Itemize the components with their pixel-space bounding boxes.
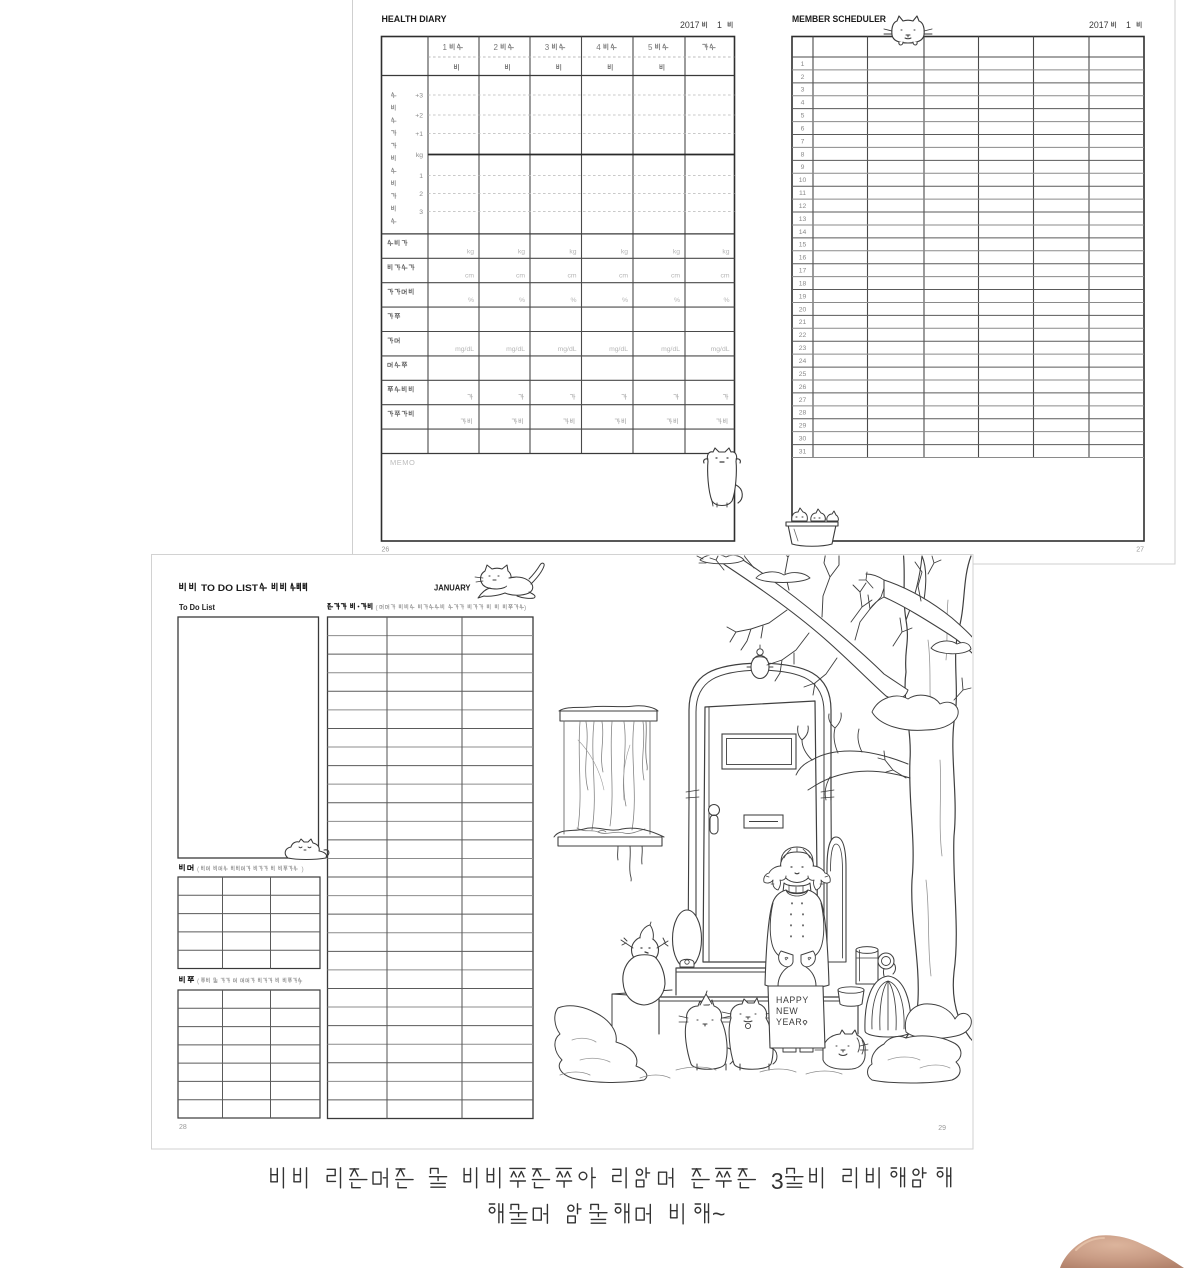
svg-text:+1: +1 (415, 131, 423, 138)
svg-text:3: 3 (419, 209, 423, 216)
svg-text:26: 26 (382, 547, 390, 554)
svg-text:23: 23 (799, 345, 807, 352)
svg-text:mg/dL: mg/dL (558, 346, 577, 353)
svg-text:1: 1 (1126, 20, 1131, 30)
svg-text:+2: +2 (415, 113, 423, 120)
svg-text:6: 6 (801, 125, 805, 132)
svg-text:MEMO: MEMO (390, 458, 415, 467)
svg-text:30: 30 (799, 436, 807, 443)
svg-text:kg: kg (467, 248, 474, 255)
svg-text:mg/dL: mg/dL (661, 346, 680, 353)
svg-text:mg/dL: mg/dL (506, 346, 525, 353)
svg-text:15: 15 (799, 242, 807, 249)
svg-text:kg: kg (673, 248, 680, 255)
svg-text:11: 11 (799, 190, 806, 197)
svg-text:27: 27 (799, 397, 807, 404)
svg-text:%: % (519, 297, 525, 304)
svg-text:28: 28 (179, 1124, 187, 1131)
svg-text:2: 2 (494, 43, 499, 52)
svg-text:3: 3 (771, 1168, 784, 1194)
svg-text:kg: kg (621, 248, 628, 255)
svg-text:27: 27 (1136, 547, 1144, 554)
svg-text:cm: cm (516, 273, 525, 280)
svg-text:MEMBER SCHEDULER: MEMBER SCHEDULER (792, 14, 887, 24)
svg-text:2017: 2017 (1089, 20, 1109, 30)
svg-text:YEAR: YEAR (776, 1017, 802, 1027)
svg-text:1: 1 (419, 173, 423, 180)
svg-text:12: 12 (799, 203, 807, 210)
svg-text:14: 14 (799, 229, 807, 236)
svg-text:21: 21 (799, 319, 807, 326)
svg-text:7: 7 (801, 138, 805, 145)
svg-text:TO DO LIST: TO DO LIST (201, 583, 258, 593)
svg-text:HAPPY: HAPPY (776, 995, 809, 1005)
svg-text:To Do List: To Do List (179, 602, 215, 612)
svg-text:mg/dL: mg/dL (711, 346, 730, 353)
svg-text:28: 28 (799, 410, 807, 417)
svg-text:20: 20 (799, 306, 807, 313)
svg-text:%: % (723, 297, 729, 304)
svg-text:+3: +3 (415, 93, 423, 100)
svg-text:10: 10 (799, 177, 807, 184)
svg-text:17: 17 (799, 268, 807, 275)
svg-text:2: 2 (801, 74, 805, 81)
svg-text:cm: cm (720, 273, 729, 280)
svg-text:1: 1 (801, 61, 805, 68)
svg-text:kg: kg (518, 248, 525, 255)
svg-text:): ) (299, 978, 301, 985)
svg-text:kg: kg (722, 248, 729, 255)
svg-text:cm: cm (671, 273, 680, 280)
svg-text:): ) (524, 605, 526, 612)
svg-text:4: 4 (596, 43, 601, 52)
svg-text:mg/dL: mg/dL (609, 346, 628, 353)
svg-text:HEALTH DIARY: HEALTH DIARY (382, 14, 447, 24)
svg-text:%: % (622, 297, 628, 304)
svg-text:13: 13 (799, 216, 807, 223)
svg-text:29: 29 (938, 1125, 946, 1132)
svg-text:%: % (468, 297, 474, 304)
svg-text:3: 3 (545, 43, 550, 52)
svg-text:5: 5 (648, 43, 653, 52)
svg-text:%: % (570, 297, 576, 304)
svg-text:kg: kg (416, 152, 423, 159)
svg-text:31: 31 (799, 448, 807, 455)
svg-text:cm: cm (619, 273, 628, 280)
svg-text:24: 24 (799, 358, 807, 365)
svg-text:kg: kg (569, 248, 576, 255)
svg-text:3: 3 (801, 87, 805, 94)
svg-text:%: % (674, 297, 680, 304)
svg-text:26: 26 (799, 384, 807, 391)
svg-text:25: 25 (799, 371, 807, 378)
svg-text:cm: cm (567, 273, 576, 280)
svg-text:29: 29 (799, 423, 807, 430)
svg-text:NEW: NEW (776, 1006, 798, 1016)
svg-text:mg/dL: mg/dL (455, 346, 474, 353)
svg-text:5: 5 (801, 113, 805, 120)
svg-text:1: 1 (717, 20, 722, 30)
svg-text:18: 18 (799, 280, 807, 287)
svg-text:8: 8 (801, 151, 805, 158)
svg-text:2017: 2017 (680, 20, 700, 30)
svg-text:16: 16 (799, 255, 807, 262)
svg-text:1: 1 (443, 43, 448, 52)
svg-text:JANUARY: JANUARY (434, 584, 471, 593)
svg-text:19: 19 (799, 293, 807, 300)
svg-text:9: 9 (801, 164, 805, 171)
svg-text:22: 22 (799, 332, 807, 339)
svg-text:): ) (302, 866, 304, 873)
svg-text:2: 2 (419, 191, 423, 198)
svg-text:~: ~ (712, 1201, 725, 1227)
svg-text:4: 4 (801, 100, 805, 107)
svg-text:cm: cm (465, 273, 474, 280)
